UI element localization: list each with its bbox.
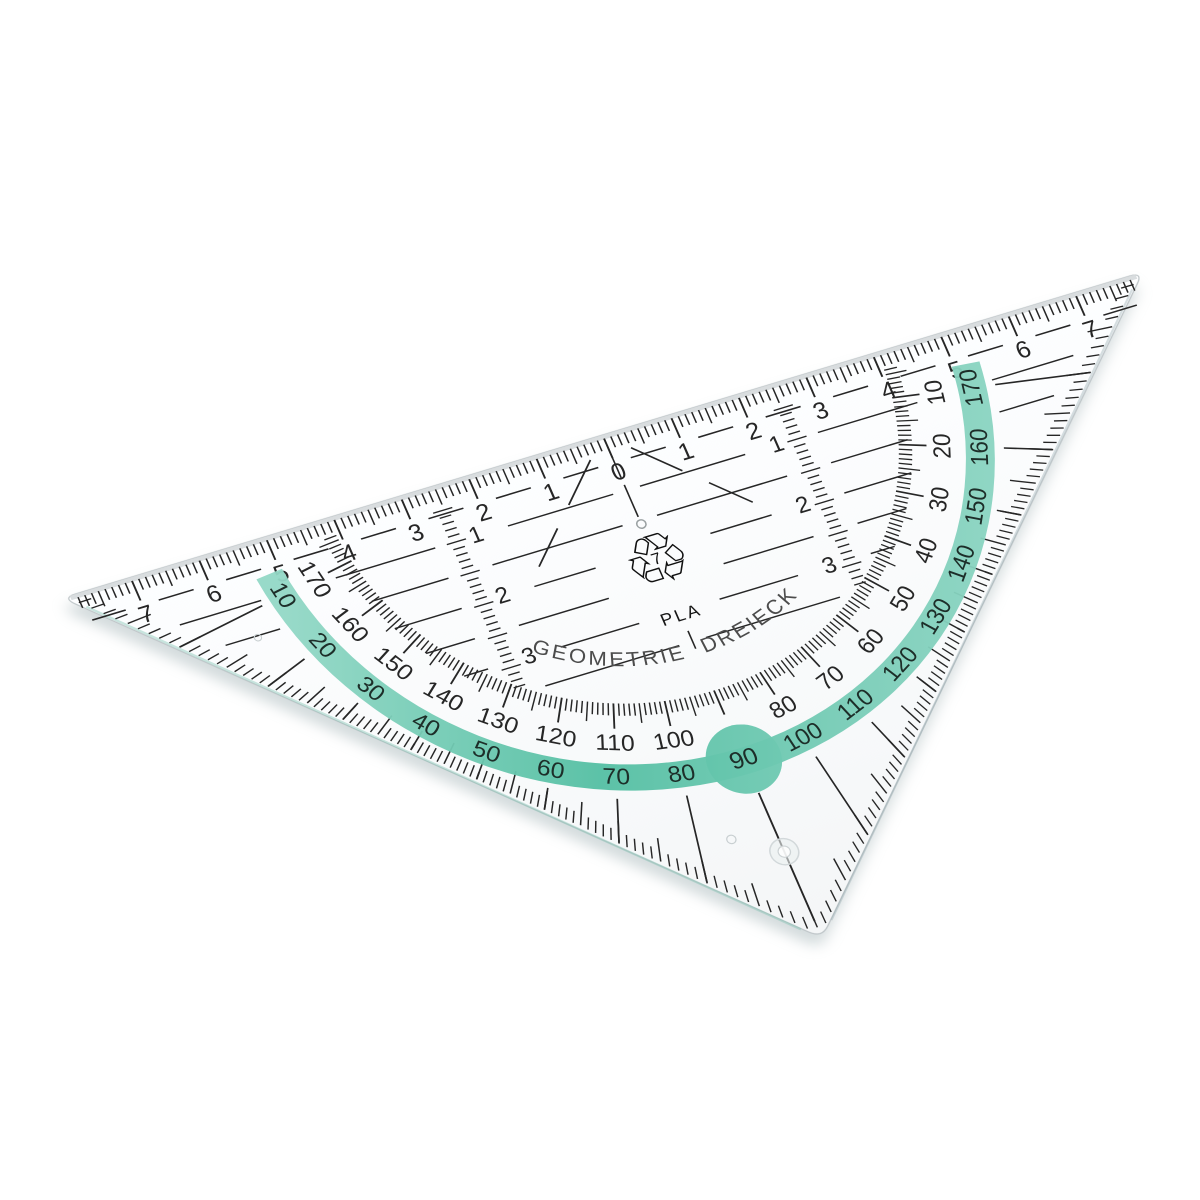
inner-degree-number: 100 [651,726,697,756]
product-photo-stage: 112233♲7PLA01122334455667710203040506070… [0,0,1200,1200]
outer-degree-number: 150 [960,486,993,528]
inner-degree-number: 20 [929,433,957,459]
triangle-outline [68,274,1200,1095]
inner-degree-number: 10 [919,378,951,406]
triangle-body [68,274,1200,1095]
inner-degree-number: 30 [925,485,956,515]
outer-degree-number: 70 [602,765,631,791]
set-square: 112233♲7PLA01122334455667710203040506070… [68,274,1200,1095]
set-square-photo: 112233♲7PLA01122334455667710203040506070… [0,0,1200,1200]
outer-degree-number: 60 [535,755,566,784]
inner-degree-number: 110 [595,731,635,757]
outer-degree-number: 80 [665,760,698,788]
outer-degree-number: 160 [966,428,995,466]
